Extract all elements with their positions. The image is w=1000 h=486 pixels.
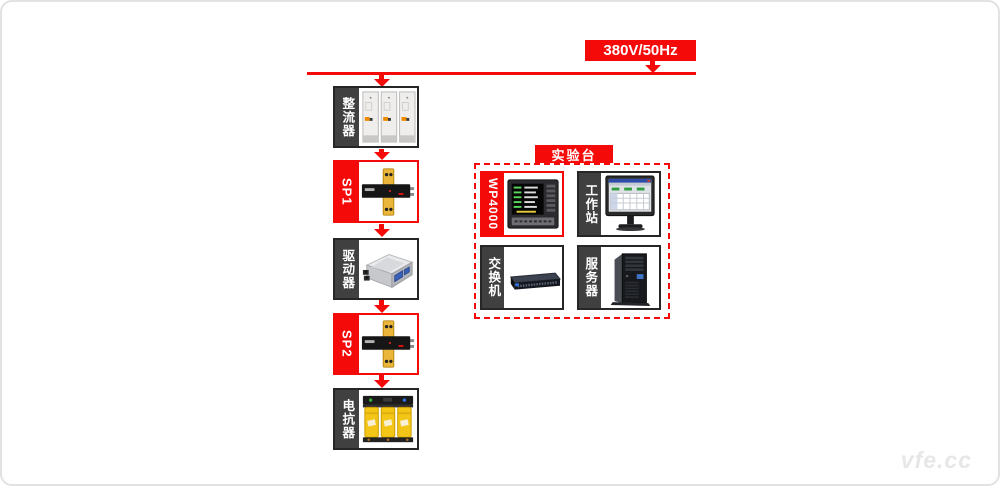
network-switch-image: [505, 250, 561, 306]
watermark: vfe.cc: [901, 447, 972, 474]
node-driver: 驱动器: [333, 238, 419, 300]
node-driver-label: 驱动器: [341, 249, 354, 290]
arrow-driver-to-sp2: [373, 300, 390, 313]
node-server-label: 服务器: [584, 257, 597, 298]
node-workstation-label: 工作站: [584, 184, 597, 225]
node-wp4000: WP4000: [480, 171, 564, 237]
node-wp4000-label: WP4000: [487, 178, 499, 230]
arrow-power-to-bus: [644, 61, 661, 73]
node-switch: 交换机: [480, 245, 564, 310]
node-rectifier: 整流器: [333, 86, 419, 148]
node-workstation: 工作站: [577, 171, 661, 237]
node-sp2: SP2: [333, 313, 419, 375]
node-reactor-label: 电抗器: [341, 399, 354, 440]
arrow-sp2-to-reactor: [373, 375, 390, 388]
node-switch-label: 交换机: [487, 257, 500, 298]
power-analyzer-image: [505, 174, 561, 234]
reactor-image: [360, 392, 416, 446]
diagram-card: 380V/50Hz 整流器: [0, 0, 1000, 486]
sp-transducer-image: [360, 166, 416, 218]
arrow-sp1-to-driver: [373, 224, 390, 237]
tower-server-image: [602, 249, 658, 307]
power-source-label: 380V/50Hz: [585, 40, 696, 61]
test-bench-title-text: 实验台: [551, 145, 596, 164]
rectifier-cabinets-image: [360, 89, 416, 145]
node-server: 服务器: [577, 245, 661, 310]
node-sp1-label: SP1: [341, 178, 354, 206]
power-source-text: 380V/50Hz: [603, 42, 677, 59]
node-sp1: SP1: [333, 160, 419, 223]
power-bus-line: [307, 72, 696, 75]
node-sp2-label: SP2: [341, 330, 354, 358]
arrow-rectifier-to-sp1: [373, 149, 390, 160]
driver-unit-image: [360, 243, 416, 295]
test-bench-title: 实验台: [535, 145, 613, 163]
workstation-monitor-image: [602, 174, 658, 234]
node-reactor: 电抗器: [333, 388, 419, 450]
sp-transducer-image: [360, 318, 416, 370]
node-rectifier-label: 整流器: [341, 97, 354, 138]
